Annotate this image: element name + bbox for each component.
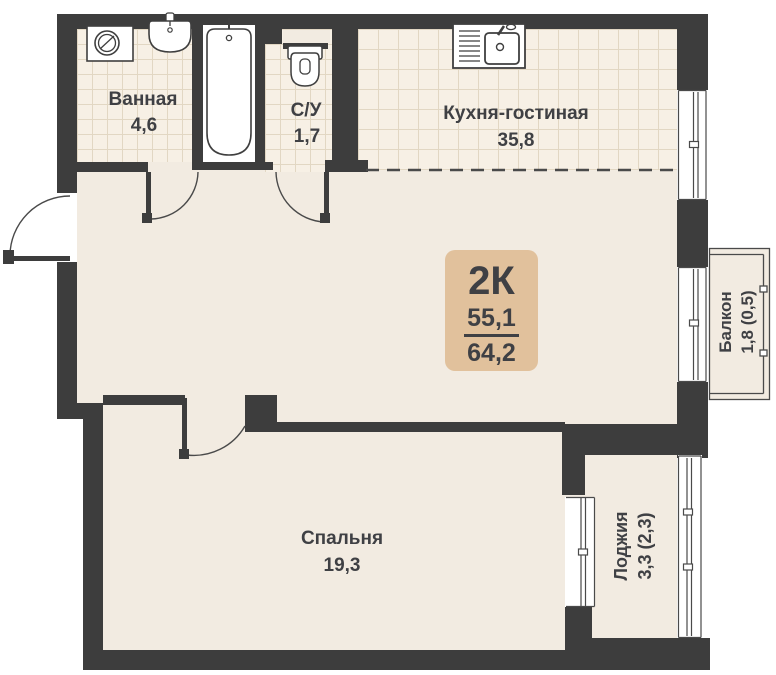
badge-divider: [464, 334, 519, 337]
bedroom-area: 19,3: [324, 555, 361, 577]
bedroom-label: Спальня: [301, 528, 383, 550]
window-glazing-top: [679, 91, 707, 200]
toilet-area: 1,7: [294, 126, 320, 148]
total-area-value: 64,2: [445, 339, 538, 367]
bathroom-area: 4,6: [131, 115, 157, 137]
balcony-name: Балкон: [715, 290, 737, 353]
balcony-label: Балкон 1,8 (0,5): [715, 290, 759, 353]
entrance-door-icon: [3, 196, 70, 264]
apartment-type-badge: 2К 55,1 64,2: [445, 250, 538, 371]
bathroom-door-icon: [142, 172, 198, 223]
kitchen-area: 35,8: [498, 130, 535, 152]
loggia-name: Лоджия: [609, 511, 633, 580]
loggia-label: Лоджия 3,3 (2,3): [609, 511, 657, 580]
bathroom-label: Ванная: [109, 89, 178, 111]
kitchen-label: Кухня-гостиная: [443, 103, 589, 125]
bedroom-door-icon: [179, 398, 245, 459]
living-area-value: 55,1: [445, 304, 538, 332]
apartment-type: 2К: [445, 258, 538, 304]
kitchen-sink-icon: [453, 24, 525, 68]
loggia-glazing: [679, 456, 702, 638]
bathroom-sink-icon: [149, 13, 191, 52]
window-glazing-bottom: [679, 268, 707, 382]
loggia-area: 3,3 (2,3): [633, 511, 657, 580]
bathtub-icon: [203, 18, 255, 162]
balcony-area: 1,8 (0,5): [737, 290, 759, 353]
toilet-label: С/У: [291, 100, 322, 122]
floorplan: Ванная 4,6 С/У 1,7 Кухня-гостиная 35,8 С…: [0, 0, 776, 675]
washing-machine-icon: [87, 26, 133, 61]
window-glazing-bedroom: [566, 498, 595, 607]
toilet-icon: [283, 43, 328, 86]
toilet-door-icon: [276, 172, 330, 223]
